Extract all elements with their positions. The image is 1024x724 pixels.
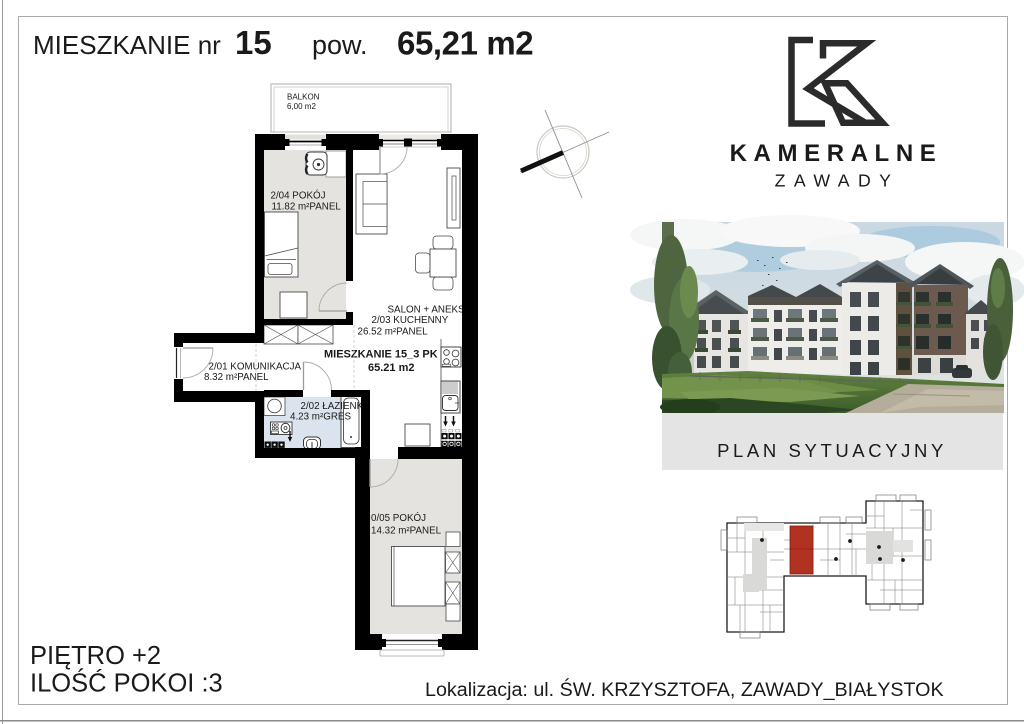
svg-text:2/04 POKÓJ: 2/04 POKÓJ	[271, 191, 326, 202]
svg-text:MIESZKANIE 15_3 PK: MIESZKANIE 15_3 PK	[324, 349, 438, 361]
svg-text:KAMERALNE: KAMERALNE	[730, 140, 943, 167]
svg-text:8.32 m²PANEL: 8.32 m²PANEL	[204, 372, 269, 383]
svg-text:14.32 m²PANEL: 14.32 m²PANEL	[371, 526, 442, 537]
svg-text:PIĘTRO +2: PIĘTRO +2	[30, 642, 161, 670]
svg-text:65,21 m2: 65,21 m2	[397, 25, 533, 62]
svg-text:MIESZKANIE nr: MIESZKANIE nr	[33, 30, 221, 60]
svg-text:0/05 POKÓJ: 0/05 POKÓJ	[371, 513, 426, 524]
svg-text:11.82 m²PANEL: 11.82 m²PANEL	[272, 202, 342, 213]
svg-text:15: 15	[235, 24, 272, 61]
svg-text:ZAWADY: ZAWADY	[775, 171, 900, 191]
svg-text:26.52 m²PANEL: 26.52 m²PANEL	[358, 327, 429, 338]
svg-text:PLAN SYTUACYJNY: PLAN SYTUACYJNY	[717, 440, 947, 461]
svg-text:6,00 m2: 6,00 m2	[287, 102, 316, 111]
svg-text:ILOŚĆ POKOI :3: ILOŚĆ POKOI :3	[30, 668, 223, 698]
svg-text:BALKON: BALKON	[287, 93, 320, 102]
svg-text:4.23 m²GRES: 4.23 m²GRES	[290, 412, 351, 423]
svg-text:2/01 KOMUNIKACJA: 2/01 KOMUNIKACJA	[209, 362, 302, 373]
svg-text:65.21 m2: 65.21 m2	[368, 362, 414, 374]
svg-text:Lokalizacja: ul. ŚW. KRZYSZTOF: Lokalizacja: ul. ŚW. KRZYSZTOFA, ZAWADY_…	[425, 677, 944, 701]
svg-text:2/03 KUCHENNY: 2/03 KUCHENNY	[372, 315, 449, 326]
svg-text:2/02 ŁAZIENKA: 2/02 ŁAZIENKA	[301, 401, 371, 412]
svg-text:pow.: pow.	[312, 30, 368, 60]
